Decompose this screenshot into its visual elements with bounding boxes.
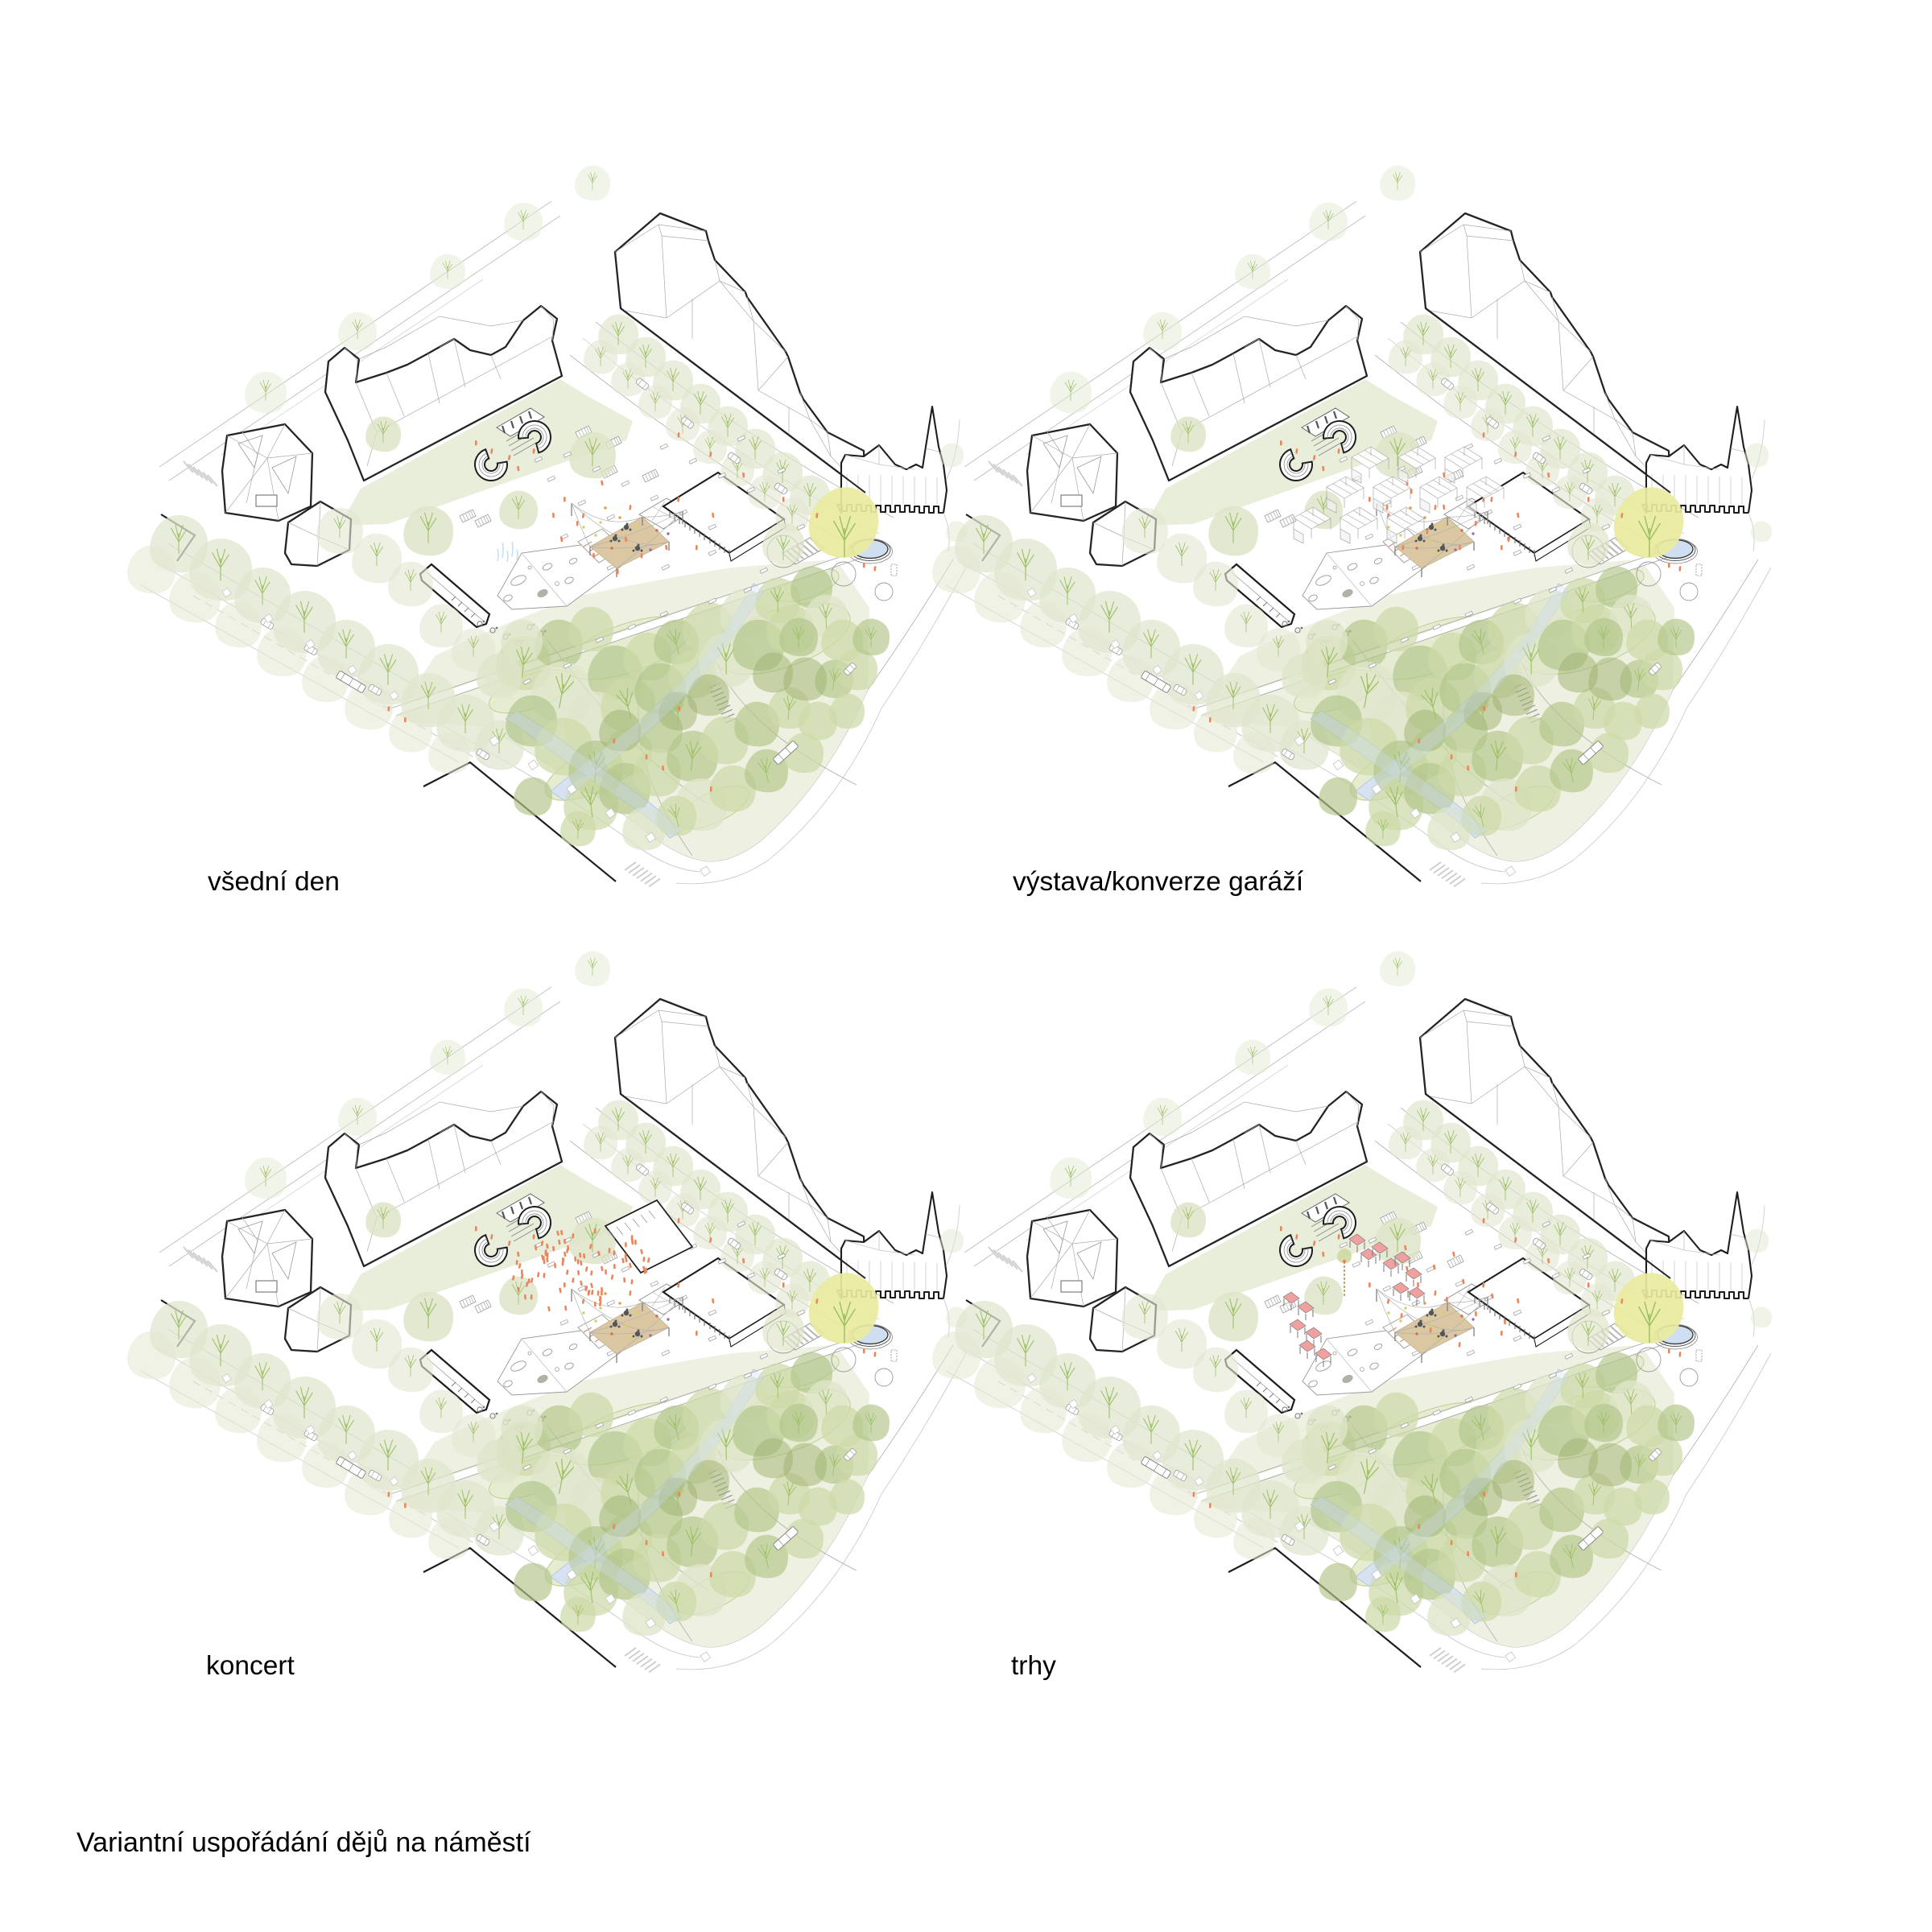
svg-text:Variantní uspořádání dějů na n: Variantní uspořádání dějů na náměstí: [76, 1827, 531, 1858]
svg-text:výstava/konverze garáží: výstava/konverze garáží: [1013, 867, 1304, 897]
svg-text:trhy: trhy: [1011, 1651, 1056, 1681]
svg-text:koncert: koncert: [206, 1651, 295, 1681]
svg-text:všední den: všední den: [208, 867, 340, 897]
